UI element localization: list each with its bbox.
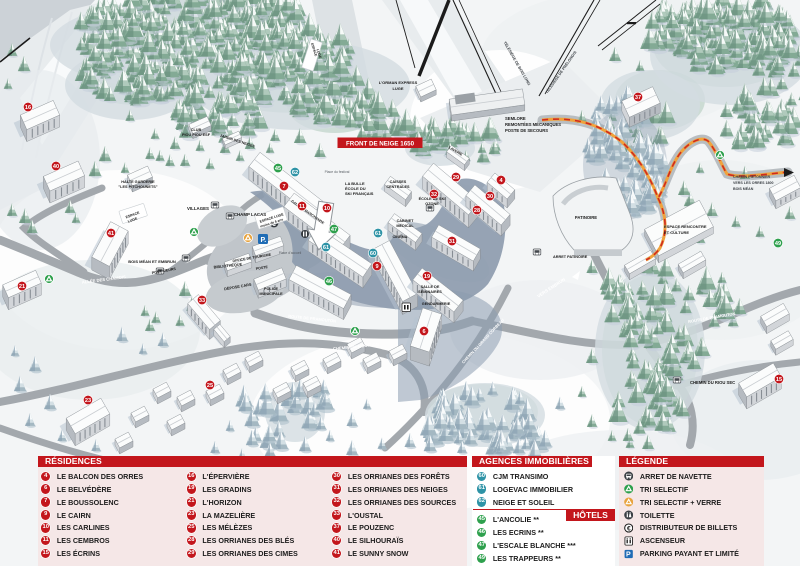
svg-text:60: 60 <box>370 251 376 257</box>
svg-text:ET CULTURE: ET CULTURE <box>664 230 689 235</box>
svg-text:16: 16 <box>25 105 31 111</box>
svg-text:POSTE DE SECOURS: POSTE DE SECOURS <box>505 128 548 133</box>
svg-text:CINÉMA: CINÉMA <box>393 234 408 239</box>
svg-text:37: 37 <box>635 95 641 101</box>
svg-text:10: 10 <box>324 206 330 212</box>
svg-text:29: 29 <box>453 175 459 181</box>
svg-text:47: 47 <box>331 227 337 233</box>
svg-text:MÉDICAL: MÉDICAL <box>396 223 414 228</box>
svg-text:CENTRALES: CENTRALES <box>386 185 410 189</box>
svg-text:VERS LES ORRES 1800: VERS LES ORRES 1800 <box>733 181 774 185</box>
svg-text:11: 11 <box>299 204 305 210</box>
svg-text:CHAMP LACAS: CHAMP LACAS <box>234 212 266 217</box>
svg-text:HALTE GARDERIE: HALTE GARDERIE <box>121 180 155 184</box>
svg-text:28: 28 <box>474 208 480 214</box>
svg-text:15: 15 <box>776 377 782 383</box>
svg-text:41: 41 <box>108 231 114 237</box>
svg-text:POLICE: POLICE <box>264 287 279 291</box>
svg-text:ARRET PATINOIRE: ARRET PATINOIRE <box>553 255 588 259</box>
svg-text:21: 21 <box>19 284 25 290</box>
svg-text:MUNICIPALE: MUNICIPALE <box>259 292 283 296</box>
svg-text:25: 25 <box>207 383 213 389</box>
svg-text:VILLAGES: VILLAGES <box>187 206 209 211</box>
svg-text:OZONE: OZONE <box>425 202 439 206</box>
svg-text:CAISSES: CAISSES <box>390 180 407 184</box>
svg-text:46: 46 <box>326 279 332 285</box>
svg-text:33: 33 <box>199 298 205 304</box>
svg-text:PATINOIRE: PATINOIRE <box>575 215 597 220</box>
svg-text:CHEMIN PIETONNIER: CHEMIN PIETONNIER <box>733 175 770 179</box>
svg-text:€: € <box>627 525 631 532</box>
svg-text:61: 61 <box>323 245 329 251</box>
svg-text:LUGE: LUGE <box>392 86 403 91</box>
svg-text:32: 32 <box>431 192 437 198</box>
svg-text:45: 45 <box>275 166 281 172</box>
svg-text:Place d'accueil: Place d'accueil <box>279 251 302 255</box>
svg-text:FRONT DE NEIGE 1650: FRONT DE NEIGE 1650 <box>346 141 415 148</box>
svg-text:"LES PITCHOUNETS": "LES PITCHOUNETS" <box>118 185 157 189</box>
svg-text:CLUB: CLUB <box>191 128 202 132</box>
svg-text:P: P <box>626 551 631 558</box>
svg-text:7: 7 <box>282 184 285 190</box>
svg-text:62: 62 <box>292 170 298 176</box>
svg-text:40: 40 <box>53 164 59 170</box>
svg-text:BOIS MÉAN ET EMBRUN: BOIS MÉAN ET EMBRUN <box>128 259 176 264</box>
svg-text:49: 49 <box>775 241 781 247</box>
svg-text:CABINET: CABINET <box>397 219 415 223</box>
svg-text:L'ORMAN EXPRESS: L'ORMAN EXPRESS <box>379 80 418 85</box>
svg-text:6: 6 <box>422 329 425 335</box>
svg-text:61: 61 <box>375 231 381 237</box>
svg-text:SKI FRANÇAIS: SKI FRANÇAIS <box>345 191 374 196</box>
svg-text:SÉMINAIRES: SÉMINAIRES <box>418 289 442 294</box>
svg-text:SALLE DE: SALLE DE <box>421 285 440 289</box>
svg-text:19: 19 <box>424 274 430 280</box>
svg-text:PIOU PIOU ESF: PIOU PIOU ESF <box>182 133 211 137</box>
svg-text:23: 23 <box>85 398 91 404</box>
svg-text:SEMLORE: SEMLORE <box>505 116 526 121</box>
svg-text:31: 31 <box>449 239 455 245</box>
svg-text:9: 9 <box>375 264 378 270</box>
svg-text:Place du festival: Place du festival <box>325 170 350 174</box>
svg-text:BOIS MÉAN: BOIS MÉAN <box>733 186 754 191</box>
svg-text:REMONTÉES MÉCANIQUES: REMONTÉES MÉCANIQUES <box>505 122 561 127</box>
svg-text:GENDARMERIE: GENDARMERIE <box>422 302 451 306</box>
svg-text:P.: P. <box>261 237 267 244</box>
svg-text:CHEMIN DU RIOU SEC: CHEMIN DU RIOU SEC <box>690 380 735 385</box>
svg-text:ESPACE RENCONTRE: ESPACE RENCONTRE <box>664 224 707 229</box>
svg-text:30: 30 <box>487 194 493 200</box>
